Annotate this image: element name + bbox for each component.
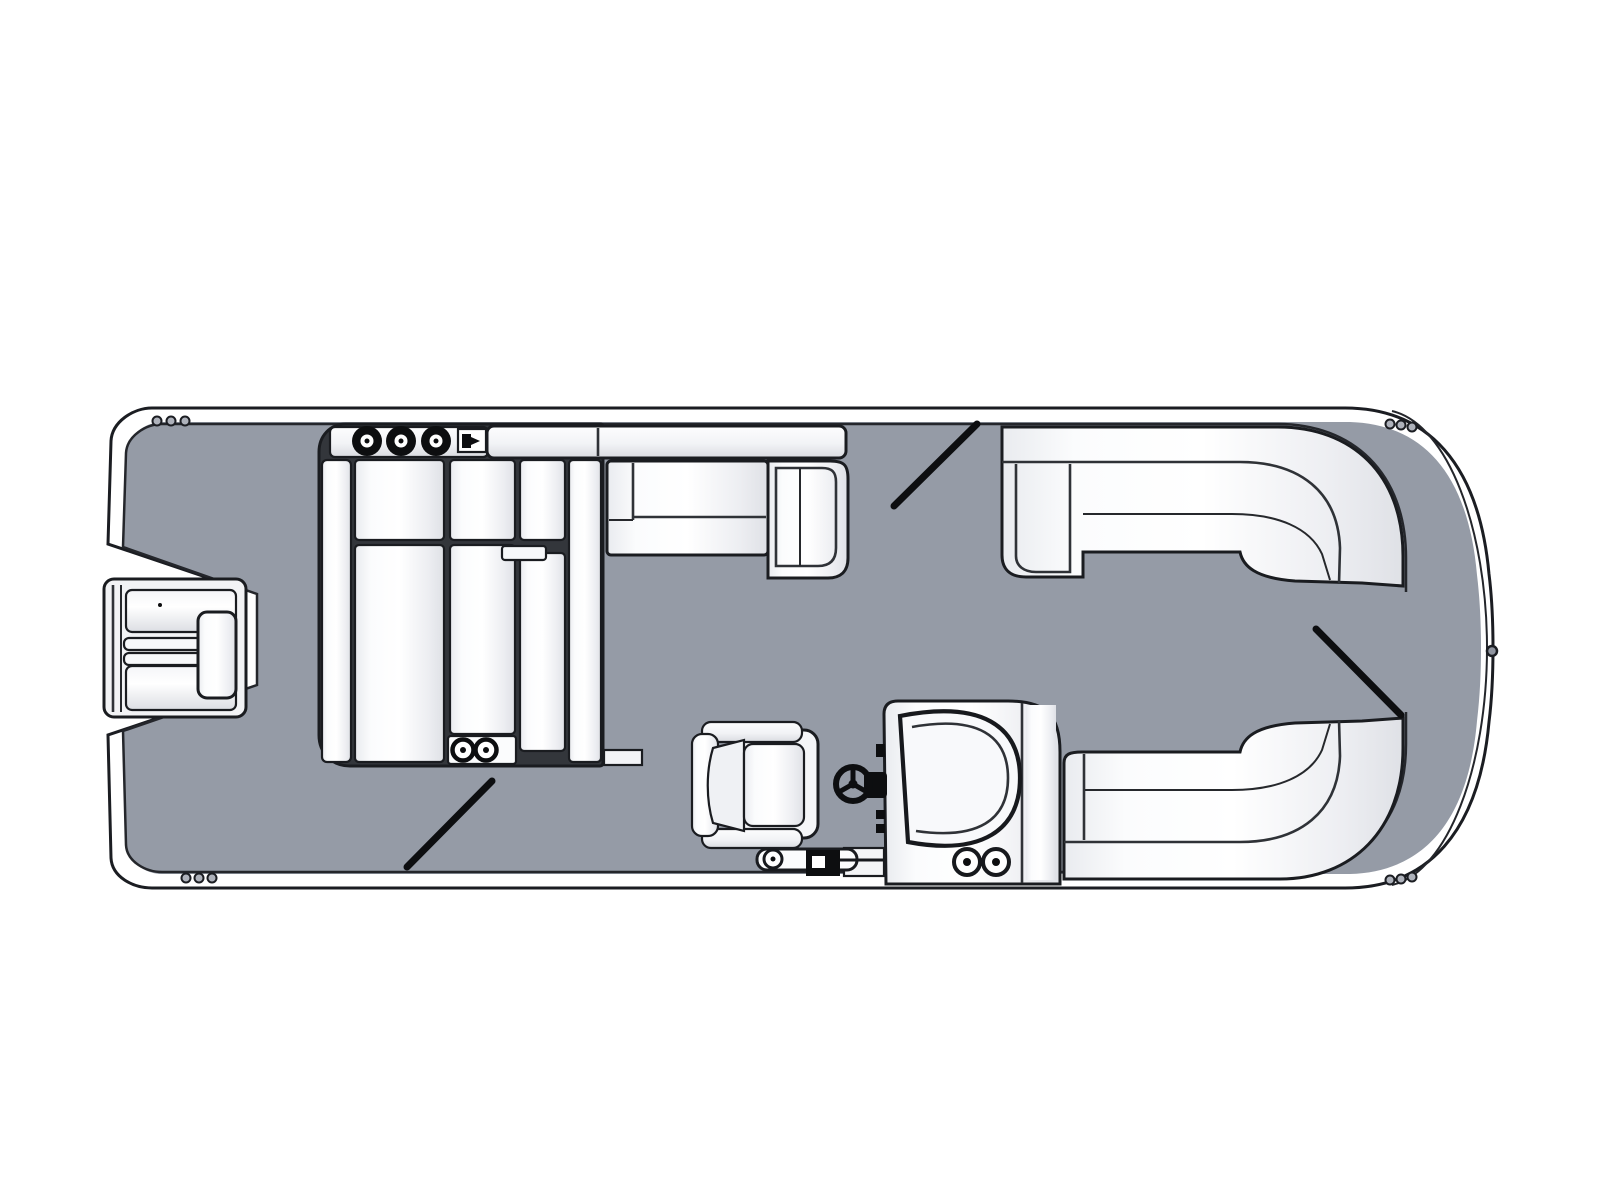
cupholder-dot <box>365 439 370 444</box>
bow-eye <box>1487 646 1497 656</box>
port-backrest-band <box>487 426 846 458</box>
captain-chair <box>692 722 818 848</box>
hinge-dot <box>153 417 162 426</box>
hinge-dot <box>208 874 217 883</box>
seat-cupholder-panel <box>448 736 516 764</box>
latch-detail <box>462 434 471 448</box>
cushion <box>520 553 565 751</box>
cupholder-dot <box>483 747 489 753</box>
hinge-dot <box>182 874 191 883</box>
cushion <box>450 460 515 540</box>
wheel-hub <box>849 780 858 789</box>
cushion <box>450 545 515 734</box>
bench-seat <box>607 461 768 555</box>
helm-switch <box>876 810 885 819</box>
hinge-dot <box>195 874 204 883</box>
helm-switch <box>876 824 885 833</box>
cupholder-dot <box>399 439 404 444</box>
port-stern-lounge <box>319 424 642 766</box>
seat-connector-tab <box>502 546 546 560</box>
pontoon-floorplan <box>0 0 1600 1200</box>
speaker-dot <box>992 858 1000 866</box>
console-latch <box>458 429 486 452</box>
helm-console <box>876 701 1060 884</box>
hinge-dot <box>1408 423 1417 432</box>
cupholder-dot <box>460 747 466 753</box>
helm-switch <box>876 744 885 757</box>
rail-hinges-top-left <box>153 417 190 426</box>
lounge-step <box>604 750 642 765</box>
chair-bucket-back <box>708 740 744 831</box>
hinge-dot <box>1386 876 1395 885</box>
cupholder-dot <box>434 439 439 444</box>
motor-detail-dot <box>158 603 162 607</box>
motor-mount-rail-2 <box>124 653 202 665</box>
backrest-column <box>569 460 601 762</box>
armrest-cupholders <box>352 426 451 456</box>
stern-motor <box>104 579 246 717</box>
hinge-dot <box>181 417 190 426</box>
hinge-dot <box>1408 873 1417 882</box>
rail-hinges-bottom-left <box>182 874 217 883</box>
cushion <box>355 545 444 762</box>
cushion <box>355 460 444 540</box>
hinge-dot <box>1397 421 1406 430</box>
tow-ring-dot <box>771 857 776 862</box>
console-panel-highlight <box>1026 705 1056 880</box>
tow-bracket-slot <box>812 856 825 868</box>
hinge-dot <box>167 417 176 426</box>
speaker-dot <box>963 858 971 866</box>
cushion <box>520 460 565 540</box>
stern-cushion-band <box>322 460 351 762</box>
motor-cowling <box>198 612 236 698</box>
motor-mount-rail-1 <box>124 638 202 650</box>
hinge-dot <box>1397 875 1406 884</box>
windshield <box>900 711 1020 845</box>
chair-seat <box>744 744 804 826</box>
hinge-dot <box>1386 420 1395 429</box>
